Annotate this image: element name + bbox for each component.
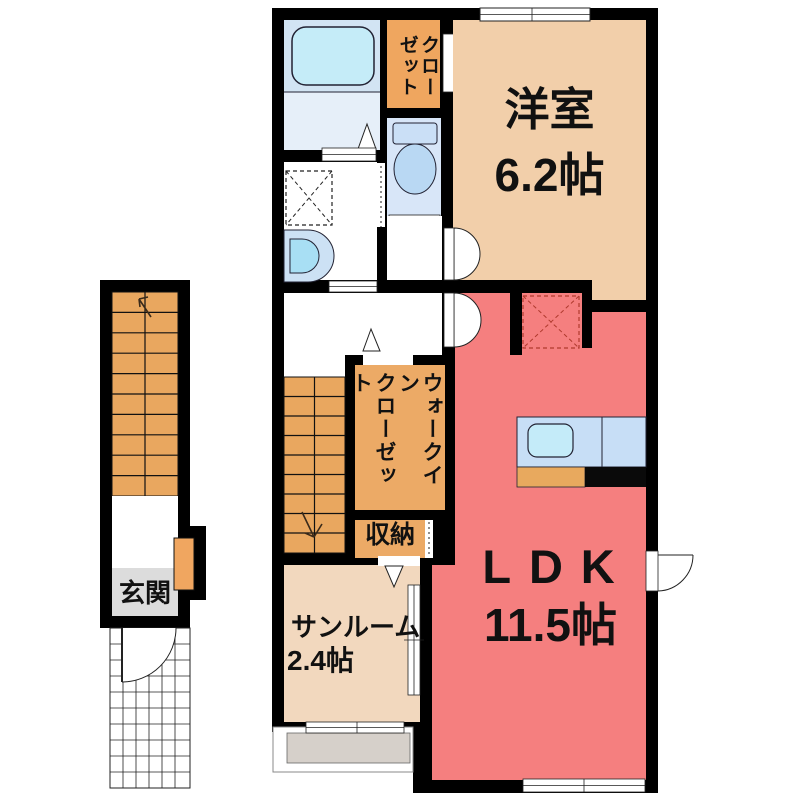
window-ldk-bottom: [523, 779, 645, 792]
ldk-entry-door: [646, 551, 693, 591]
ldk-size: 11.5帖: [448, 600, 653, 652]
storage-label: 収納: [355, 521, 425, 549]
floor-plan: 洋室 6.2帖 LDK 11.5帖 サンルーム 2.4帖 収納 玄関 クロー ゼ…: [0, 0, 800, 800]
kitchen-sink-icon: [528, 424, 573, 457]
window-sunroom-bottom: [306, 722, 404, 733]
western-room-label: 洋室: [453, 85, 646, 135]
closet-label: クロー ゼット: [389, 26, 439, 106]
western-room: [453, 8, 646, 280]
wash-basin-icon: [284, 230, 334, 282]
sunroom-size: 2.4帖: [287, 645, 354, 676]
ldk-label: LDK: [455, 541, 646, 594]
sunroom-label: サンルーム: [291, 613, 420, 642]
entrance-label: 玄関: [112, 579, 178, 608]
bathroom: [284, 20, 380, 161]
stairs-main-icon: [284, 377, 345, 553]
window-top: [480, 8, 590, 21]
stairwell-building: [100, 280, 206, 788]
toilet-tank-icon: [393, 123, 437, 144]
toilet-bowl-icon: [394, 144, 436, 194]
washroom: [284, 162, 385, 292]
kitchen-counter-icon: [517, 417, 646, 487]
stairs-icon: [112, 292, 178, 496]
western-room-size: 6.2帖: [443, 150, 656, 202]
bathtub-icon: [292, 27, 374, 85]
walk-in-closet-label: ウォークイン クローゼット: [357, 372, 443, 506]
sunroom-porch: [273, 727, 413, 772]
